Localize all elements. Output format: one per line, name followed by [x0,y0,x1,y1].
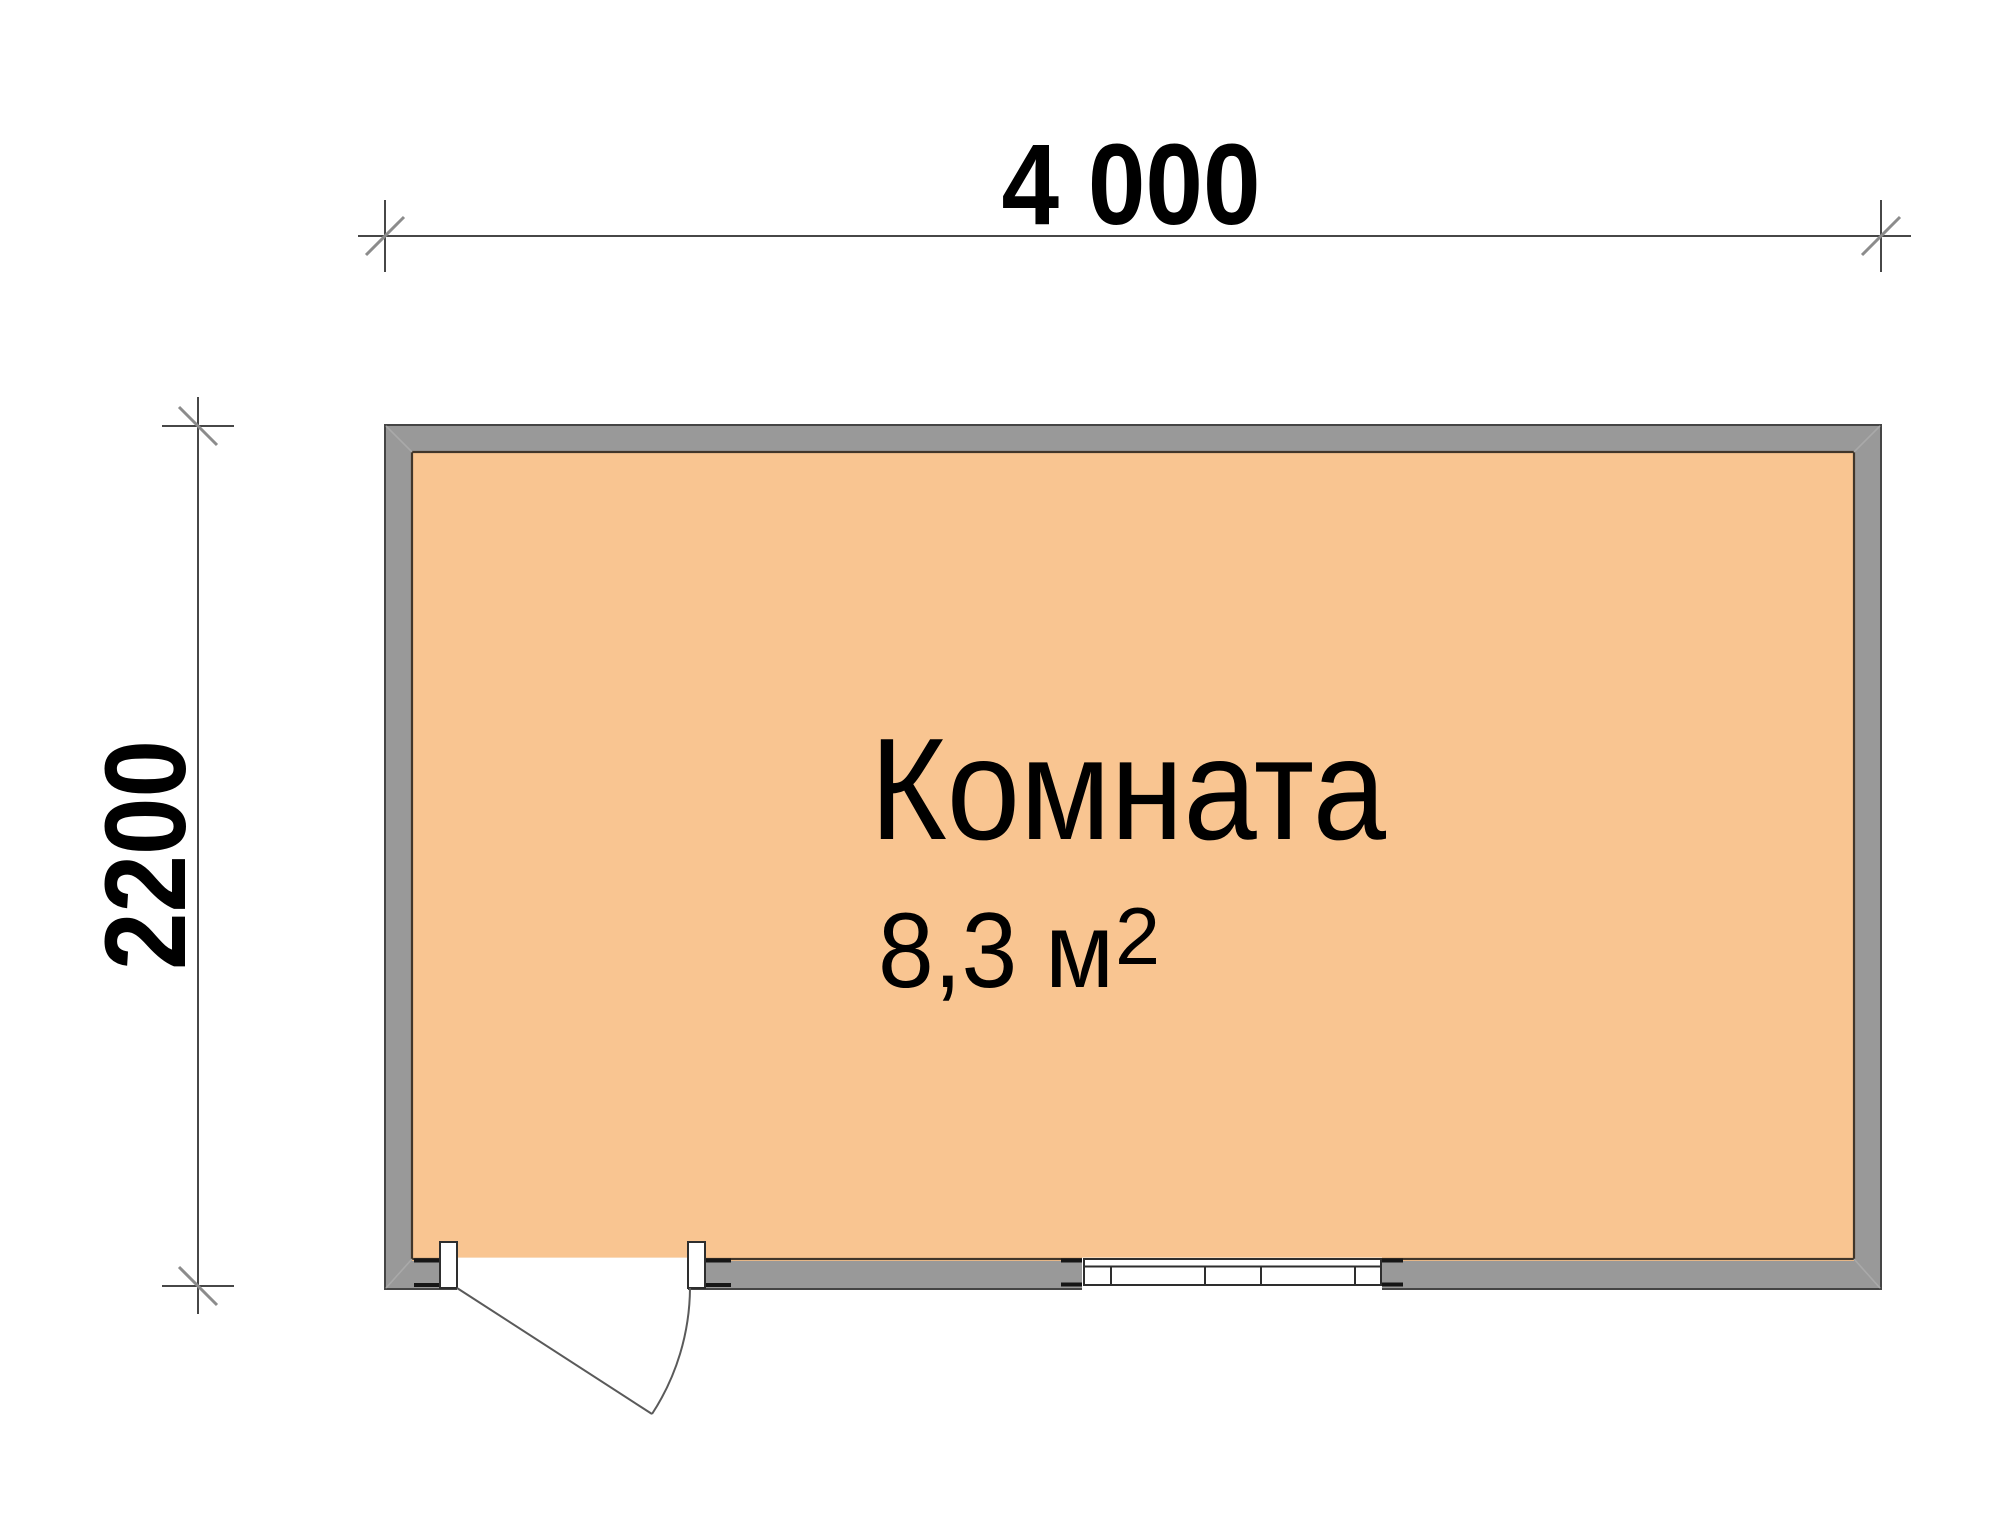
svg-text:4 000: 4 000 [1002,121,1261,249]
svg-text:2: 2 [1115,892,1160,982]
svg-text:Комната: Комната [870,708,1386,870]
svg-text:2200: 2200 [82,740,210,970]
svg-text:8,3 м: 8,3 м [878,890,1114,1010]
